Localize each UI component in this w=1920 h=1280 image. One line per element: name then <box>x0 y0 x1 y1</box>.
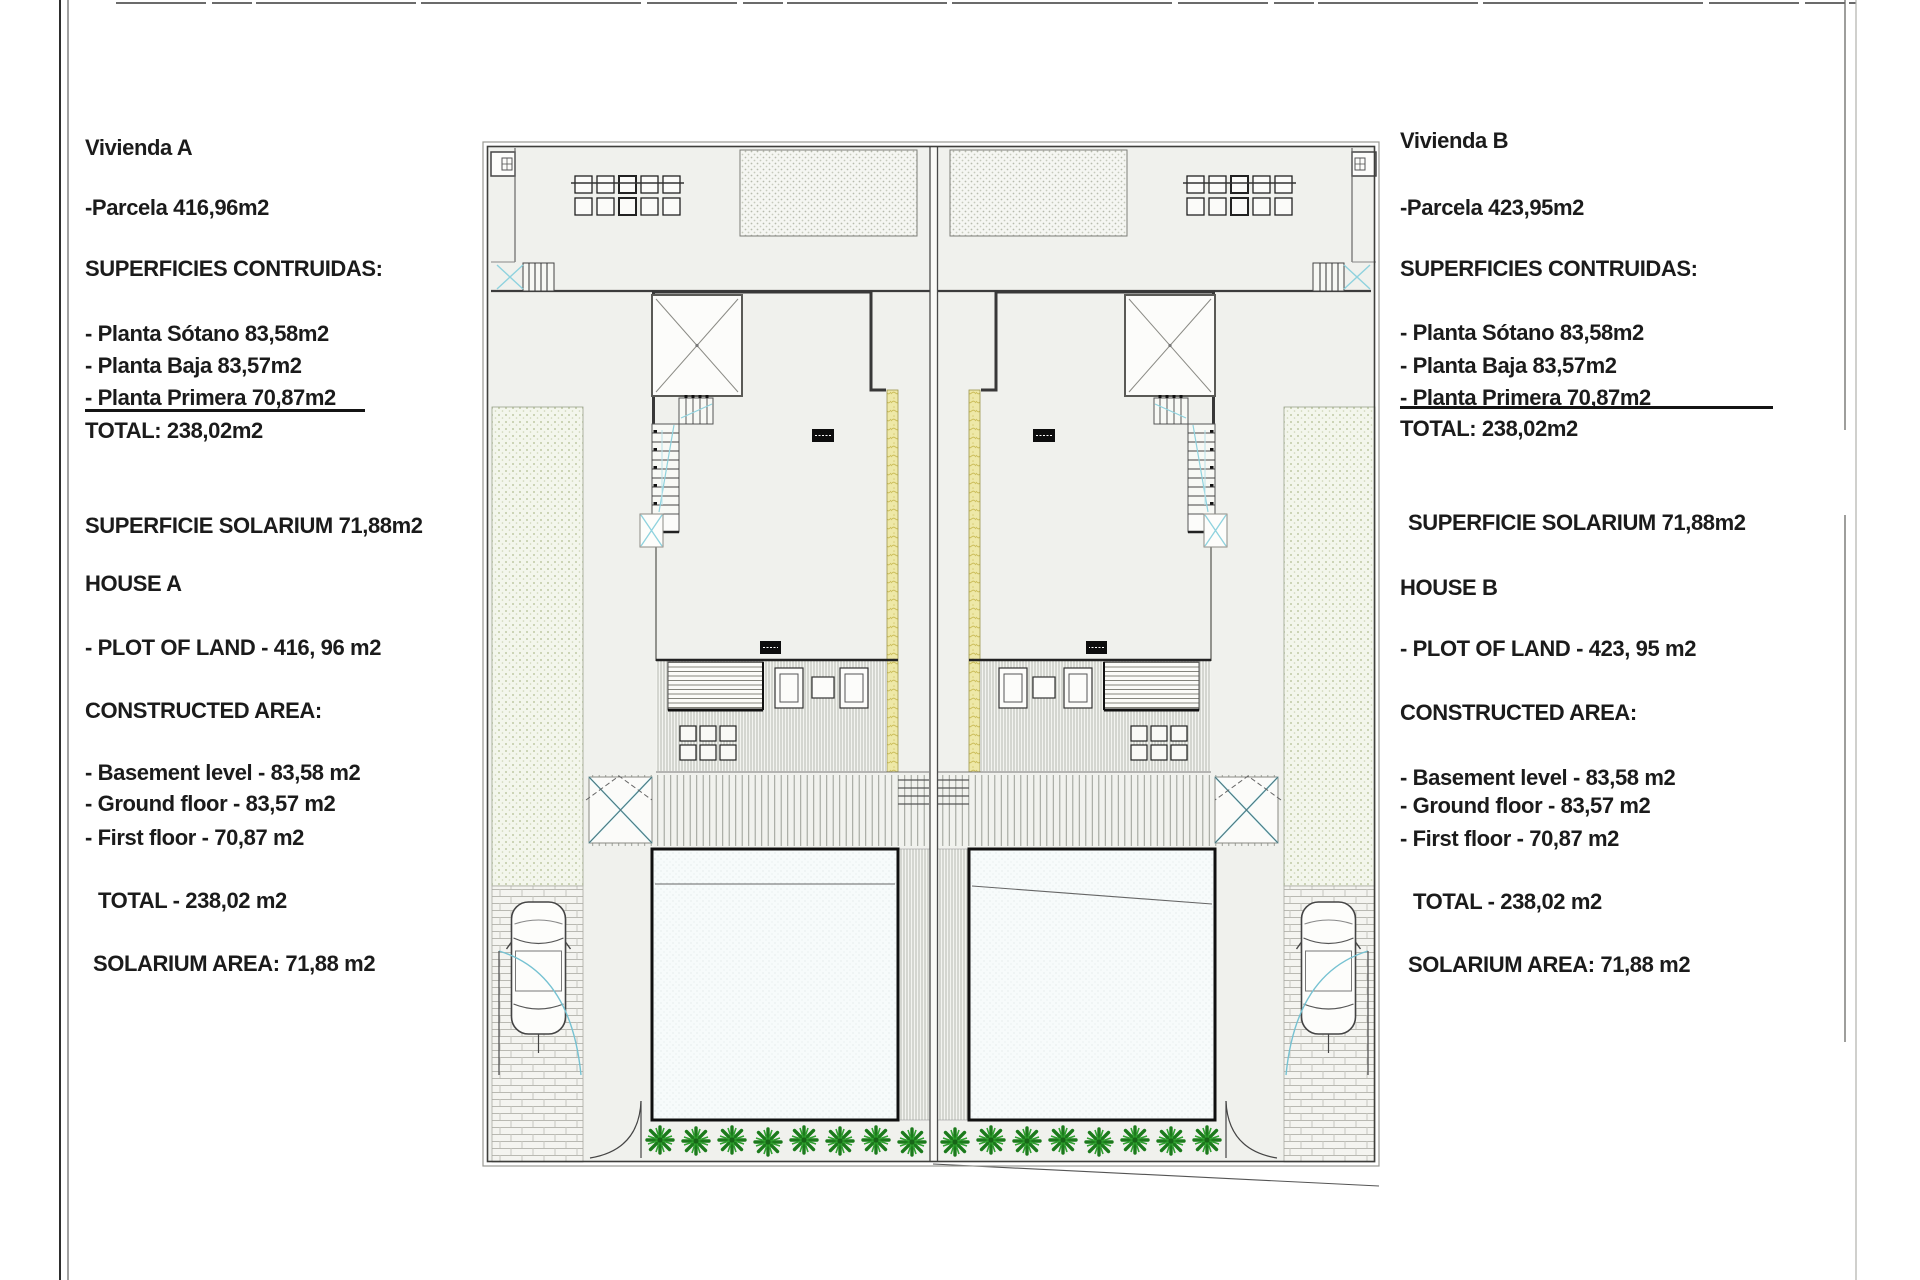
site-plan-drawing <box>0 0 1920 1280</box>
party-wall-divider <box>930 146 938 1162</box>
skewed-bottom-line <box>933 1164 1379 1186</box>
